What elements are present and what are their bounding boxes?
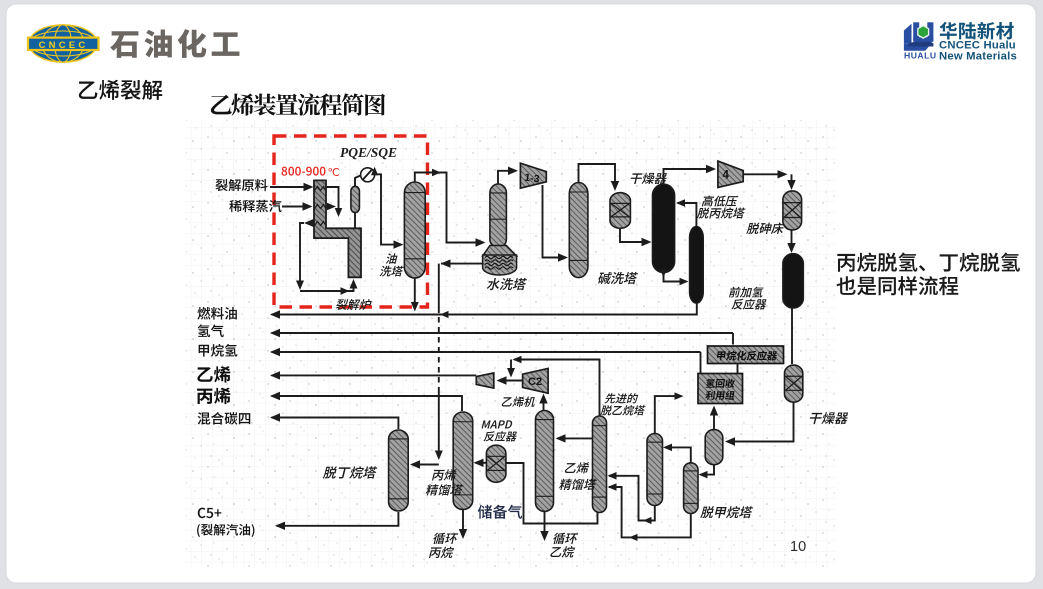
svg-text:New Materials: New Materials: [939, 50, 1017, 62]
svg-text:HUALU: HUALU: [904, 51, 937, 61]
svg-text:10: 10: [790, 539, 806, 555]
svg-text:4: 4: [723, 170, 730, 182]
svg-text:C2: C2: [528, 376, 542, 388]
svg-text:℃: ℃: [328, 167, 340, 179]
svg-text:PQE/SQE: PQE/SQE: [340, 145, 397, 160]
svg-text:1-3: 1-3: [524, 172, 541, 186]
svg-text:CNCEC: CNCEC: [39, 40, 89, 51]
